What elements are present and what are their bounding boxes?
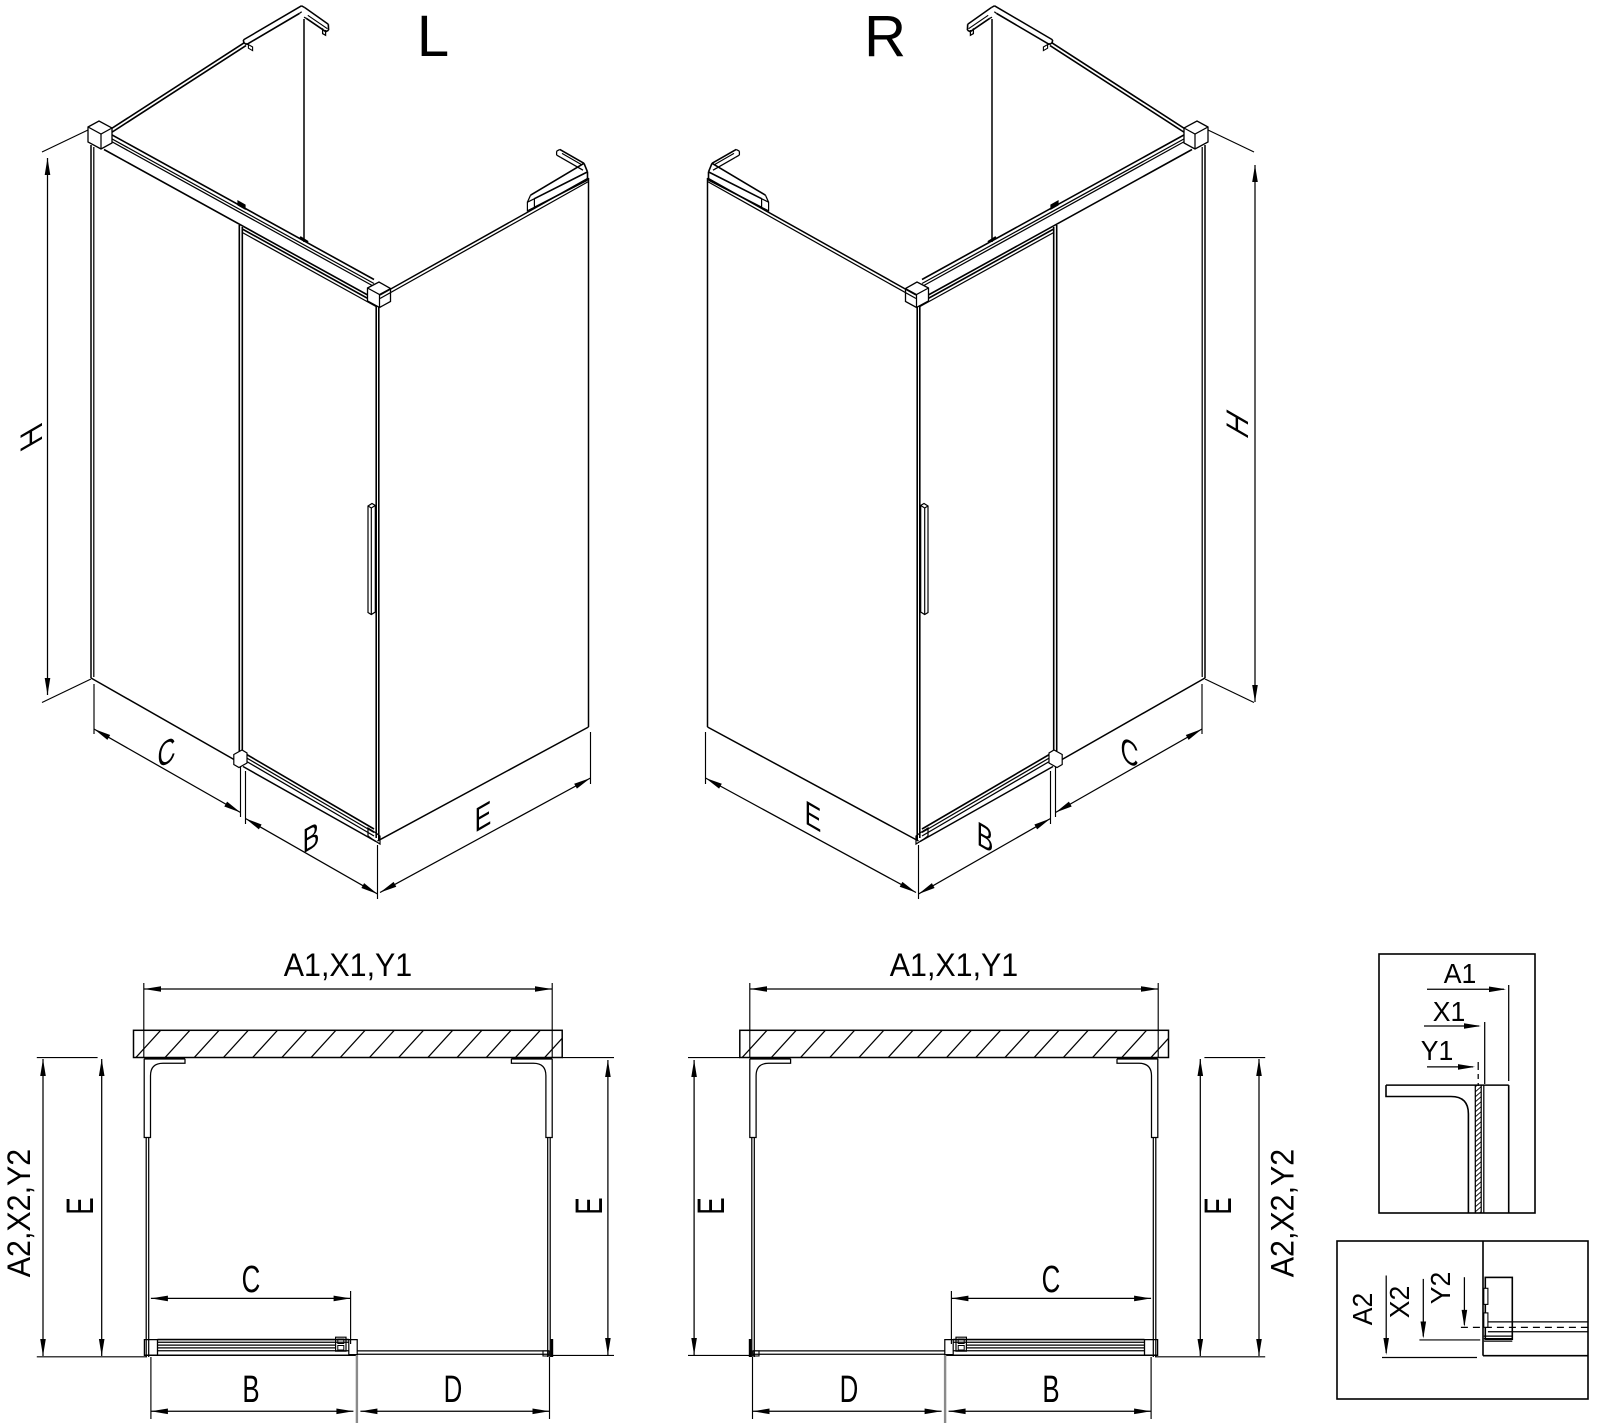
svg-text:A2,X2,Y2: A2,X2,Y2 — [1, 1149, 37, 1277]
svg-text:D: D — [840, 1368, 859, 1410]
svg-text:E: E — [59, 1197, 101, 1214]
svg-text:C: C — [1042, 1258, 1061, 1300]
svg-text:E: E — [690, 1197, 732, 1214]
svg-text:B: B — [1042, 1368, 1059, 1410]
svg-text:A1,X1,Y1: A1,X1,Y1 — [890, 947, 1018, 983]
svg-text:D: D — [444, 1368, 463, 1410]
svg-text:A1,X1,Y1: A1,X1,Y1 — [284, 947, 412, 983]
svg-text:X2: X2 — [1383, 1286, 1415, 1319]
svg-text:Y2: Y2 — [1424, 1272, 1456, 1305]
svg-text:A1: A1 — [1444, 957, 1477, 989]
svg-text:A2,X2,Y2: A2,X2,Y2 — [1265, 1149, 1301, 1277]
svg-text:X1: X1 — [1433, 995, 1466, 1027]
svg-text:Y1: Y1 — [1421, 1034, 1454, 1066]
svg-text:A2: A2 — [1346, 1293, 1378, 1326]
svg-text:C: C — [242, 1258, 261, 1300]
svg-text:R: R — [864, 4, 906, 69]
svg-text:B: B — [242, 1368, 259, 1410]
svg-text:E: E — [1197, 1197, 1239, 1214]
svg-text:L: L — [417, 4, 449, 69]
svg-text:E: E — [568, 1197, 610, 1214]
